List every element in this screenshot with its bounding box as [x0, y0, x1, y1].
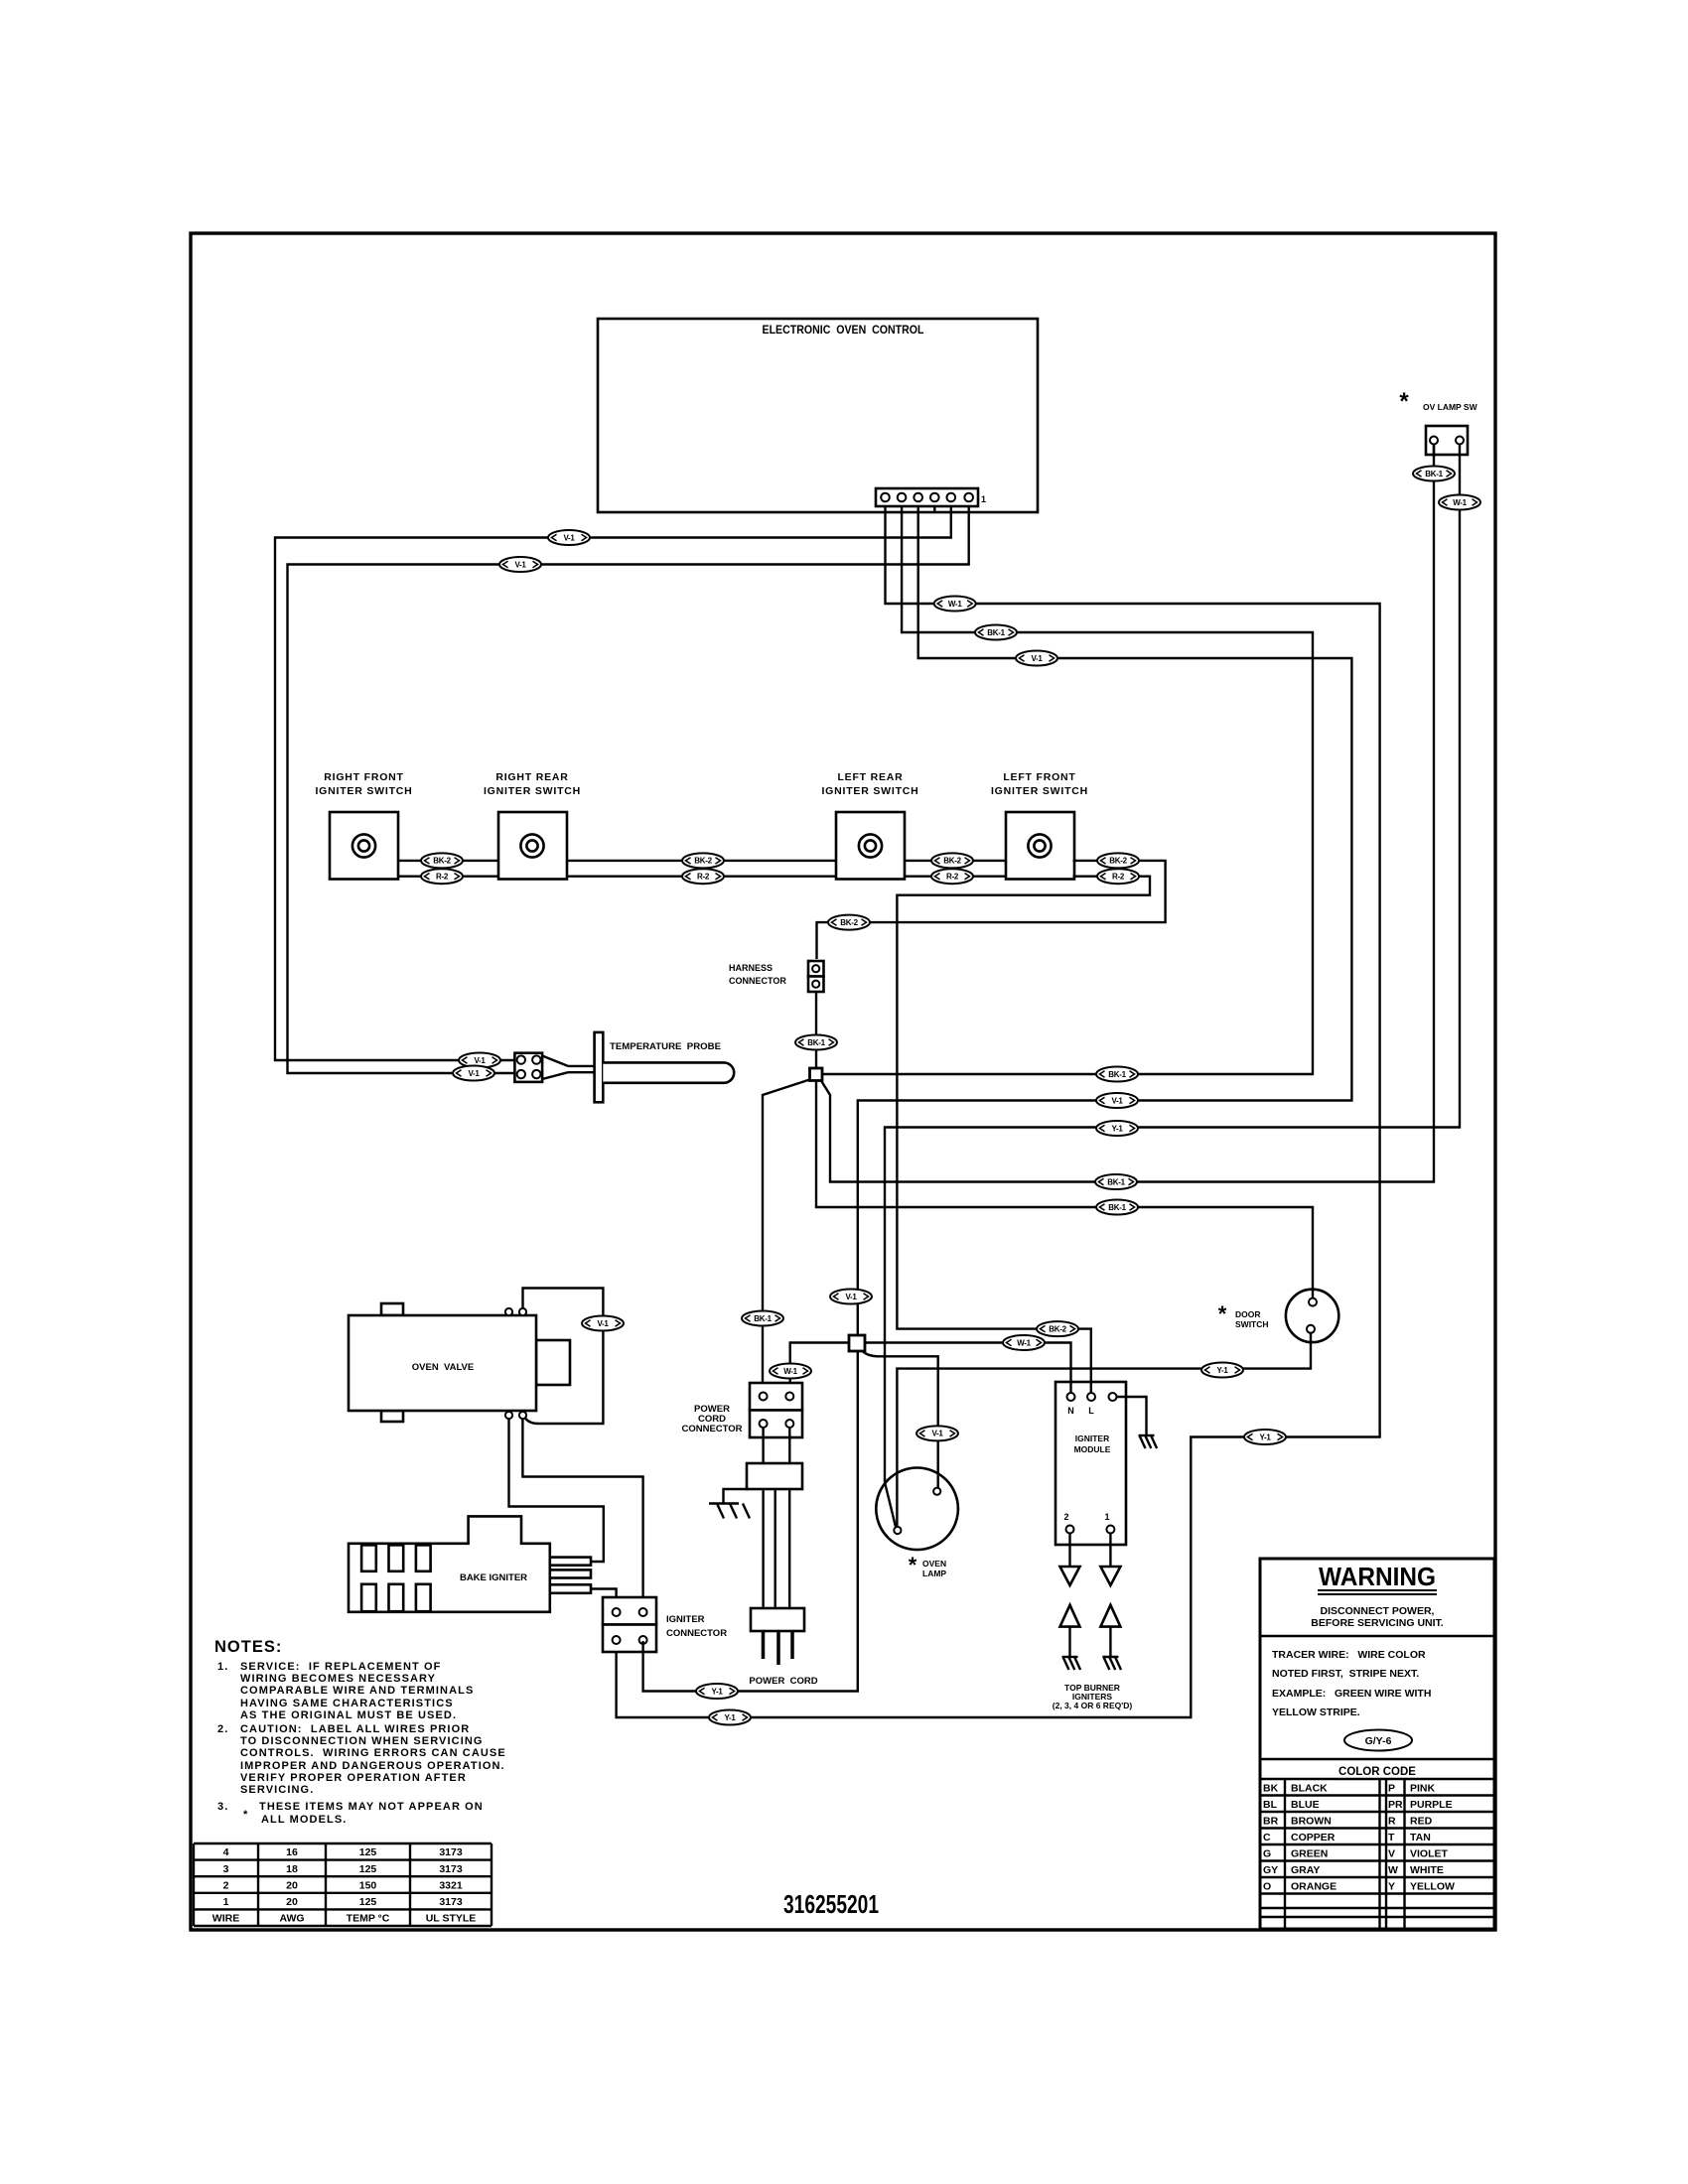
svg-text:BLUE: BLUE [1291, 1799, 1320, 1811]
svg-text:1: 1 [981, 494, 986, 504]
svg-text:BEFORE SERVICING UNIT.: BEFORE SERVICING UNIT. [1311, 1617, 1443, 1629]
svg-text:DOOR: DOOR [1235, 1309, 1261, 1319]
svg-text:EXAMPLE: GREEN WIRE WITH: EXAMPLE: GREEN WIRE WITH [1272, 1688, 1431, 1700]
svg-text:VERIFY PROPER OPERATION AFTER: VERIFY PROPER OPERATION AFTER [240, 1772, 467, 1784]
svg-text:Y-1: Y-1 [724, 1713, 736, 1722]
svg-text:(2, 3, 4 OR 6 REQ'D): (2, 3, 4 OR 6 REQ'D) [1053, 1701, 1133, 1710]
svg-text:IGNITER SWITCH: IGNITER SWITCH [991, 785, 1088, 797]
svg-text:O: O [1263, 1880, 1271, 1892]
svg-text:DISCONNECT POWER,: DISCONNECT POWER, [1321, 1605, 1435, 1617]
svg-text:125: 125 [359, 1896, 377, 1908]
svg-text:V-1: V-1 [931, 1430, 943, 1438]
svg-text:R: R [1388, 1815, 1396, 1827]
svg-text:CAUTION: LABEL ALL WIRES PRIO: CAUTION: LABEL ALL WIRES PRIOR [240, 1723, 470, 1735]
svg-text:BROWN: BROWN [1291, 1815, 1332, 1827]
svg-text:ELECTRONIC OVEN CONTROL: ELECTRONIC OVEN CONTROL [763, 323, 924, 337]
svg-text:OVEN VALVE: OVEN VALVE [412, 1362, 474, 1373]
svg-text:BLACK: BLACK [1291, 1782, 1328, 1794]
svg-text:COMPARABLE WIRE AND TERMINALS: COMPARABLE WIRE AND TERMINALS [240, 1685, 474, 1697]
svg-text:WHITE: WHITE [1410, 1864, 1444, 1876]
svg-text:BK-1: BK-1 [1108, 1070, 1126, 1079]
svg-text:WARNING: WARNING [1319, 1562, 1436, 1591]
svg-text:G: G [1263, 1847, 1271, 1859]
svg-text:2: 2 [223, 1879, 229, 1891]
svg-text:IMPROPER AND DANGEROUS OPERATI: IMPROPER AND DANGEROUS OPERATION. [240, 1760, 505, 1772]
svg-text:1.: 1. [217, 1661, 228, 1673]
svg-text:ALL MODELS.: ALL MODELS. [261, 1814, 347, 1826]
svg-text:IGNITER SWITCH: IGNITER SWITCH [484, 785, 581, 797]
svg-text:COLOR CODE: COLOR CODE [1338, 1766, 1416, 1778]
svg-text:BK-1: BK-1 [1108, 1203, 1126, 1212]
svg-text:YELLOW STRIPE.: YELLOW STRIPE. [1272, 1706, 1360, 1718]
svg-text:*: * [243, 1809, 248, 1821]
svg-text:BK-1: BK-1 [987, 628, 1005, 637]
svg-text:GY: GY [1263, 1864, 1278, 1876]
svg-text:GRAY: GRAY [1291, 1864, 1320, 1876]
svg-text:UL STYLE: UL STYLE [426, 1913, 477, 1925]
svg-text:SERVICE: IF REPLACEMENT OF: SERVICE: IF REPLACEMENT OF [240, 1661, 441, 1673]
svg-text:3321: 3321 [439, 1879, 463, 1891]
svg-text:*: * [1399, 388, 1409, 415]
svg-text:150: 150 [359, 1879, 377, 1891]
svg-text:W-1: W-1 [1453, 498, 1467, 507]
svg-text:V-1: V-1 [514, 560, 526, 569]
svg-text:T: T [1388, 1832, 1395, 1843]
svg-text:R-2: R-2 [436, 873, 449, 882]
svg-text:BK-2: BK-2 [694, 857, 712, 866]
svg-text:SWITCH: SWITCH [1235, 1319, 1269, 1329]
svg-text:PR: PR [1388, 1799, 1403, 1811]
svg-text:2: 2 [1063, 1512, 1068, 1522]
svg-text:V-1: V-1 [468, 1069, 480, 1078]
svg-text:*: * [1218, 1301, 1227, 1326]
svg-text:VIOLET: VIOLET [1410, 1847, 1449, 1859]
svg-text:20: 20 [286, 1879, 298, 1891]
svg-text:LAMP: LAMP [922, 1569, 946, 1578]
svg-text:BK-1: BK-1 [754, 1314, 772, 1323]
svg-text:BK-2: BK-2 [1109, 857, 1127, 866]
svg-text:THESE ITEMS MAY NOT APPEAR ON: THESE ITEMS MAY NOT APPEAR ON [259, 1801, 484, 1813]
svg-text:BK-1: BK-1 [1107, 1177, 1125, 1186]
svg-text:V-1: V-1 [597, 1319, 609, 1328]
svg-text:3173: 3173 [439, 1896, 463, 1908]
svg-text:PINK: PINK [1410, 1782, 1436, 1794]
svg-text:1: 1 [223, 1896, 229, 1908]
svg-text:NOTES:: NOTES: [214, 1638, 282, 1656]
svg-text:IGNITER SWITCH: IGNITER SWITCH [821, 785, 918, 797]
svg-text:*: * [909, 1553, 917, 1577]
svg-text:2.: 2. [217, 1723, 228, 1735]
svg-text:P: P [1388, 1782, 1395, 1794]
svg-text:MODULE: MODULE [1074, 1444, 1111, 1454]
svg-text:CONNECTOR: CONNECTOR [666, 1628, 727, 1639]
svg-text:L: L [1088, 1406, 1094, 1416]
svg-text:POWER CORD: POWER CORD [749, 1676, 817, 1687]
svg-text:16: 16 [286, 1846, 298, 1858]
svg-text:OV LAMP SW: OV LAMP SW [1423, 402, 1478, 412]
svg-text:TO DISCONNECTION WHEN SERVICIN: TO DISCONNECTION WHEN SERVICING [240, 1735, 484, 1747]
svg-text:BL: BL [1263, 1799, 1278, 1811]
svg-text:BK-2: BK-2 [943, 857, 961, 866]
svg-text:IGNITER SWITCH: IGNITER SWITCH [315, 785, 412, 797]
svg-text:W: W [1388, 1864, 1398, 1876]
svg-text:BR: BR [1263, 1815, 1279, 1827]
svg-text:NOTED FIRST, STRIPE NEXT.: NOTED FIRST, STRIPE NEXT. [1272, 1668, 1419, 1680]
svg-text:3173: 3173 [439, 1863, 463, 1875]
svg-text:WIRING BECOMES NECESSARY: WIRING BECOMES NECESSARY [240, 1673, 436, 1685]
svg-text:V: V [1388, 1847, 1395, 1859]
svg-text:Y: Y [1388, 1880, 1395, 1892]
svg-text:BK-2: BK-2 [840, 918, 858, 927]
svg-text:20: 20 [286, 1896, 298, 1908]
svg-text:TRACER WIRE: WIRE COLOR: TRACER WIRE: WIRE COLOR [1272, 1649, 1426, 1661]
svg-text:AS THE ORIGINAL MUST BE USED.: AS THE ORIGINAL MUST BE USED. [240, 1709, 457, 1721]
svg-text:LEFT FRONT: LEFT FRONT [1003, 771, 1075, 783]
svg-text:BK-1: BK-1 [1425, 470, 1443, 478]
svg-text:BK-1: BK-1 [807, 1038, 825, 1047]
svg-text:4: 4 [223, 1846, 229, 1858]
svg-text:PURPLE: PURPLE [1410, 1799, 1453, 1811]
svg-text:Y-1: Y-1 [1216, 1366, 1228, 1375]
svg-text:V-1: V-1 [845, 1293, 857, 1301]
svg-text:1: 1 [1104, 1512, 1109, 1522]
svg-text:N: N [1067, 1406, 1074, 1416]
svg-text:G/Y-6: G/Y-6 [1365, 1735, 1392, 1747]
svg-text:R-2: R-2 [1112, 873, 1125, 882]
svg-text:IGNITER: IGNITER [1075, 1433, 1109, 1443]
svg-text:TEMPERATURE PROBE: TEMPERATURE PROBE [610, 1041, 721, 1052]
svg-text:SERVICING.: SERVICING. [240, 1784, 314, 1796]
svg-text:Y-1: Y-1 [1111, 1124, 1123, 1133]
svg-text:3173: 3173 [439, 1846, 463, 1858]
svg-text:TEMP °C: TEMP °C [347, 1913, 390, 1925]
svg-text:CONTROLS. WIRING ERRORS CAN C: CONTROLS. WIRING ERRORS CAN CAUSE [240, 1747, 506, 1759]
svg-text:R-2: R-2 [946, 873, 959, 882]
svg-text:COPPER: COPPER [1291, 1832, 1336, 1843]
svg-text:125: 125 [359, 1846, 377, 1858]
svg-text:W-1: W-1 [783, 1367, 797, 1376]
svg-text:HARNESS: HARNESS [729, 963, 773, 973]
svg-text:R-2: R-2 [697, 873, 710, 882]
svg-text:HAVING SAME CHARACTERISTICS: HAVING SAME CHARACTERISTICS [240, 1698, 454, 1709]
svg-text:RIGHT FRONT: RIGHT FRONT [324, 771, 404, 783]
svg-text:Y-1: Y-1 [711, 1687, 723, 1696]
svg-text:YELLOW: YELLOW [1410, 1880, 1455, 1892]
svg-text:OVEN: OVEN [922, 1559, 946, 1569]
svg-text:3.: 3. [217, 1801, 228, 1813]
svg-text:BK-2: BK-2 [433, 857, 451, 866]
svg-text:125: 125 [359, 1863, 377, 1875]
svg-text:AWG: AWG [279, 1913, 304, 1925]
svg-text:CONNECTOR: CONNECTOR [681, 1424, 742, 1434]
svg-text:TAN: TAN [1410, 1832, 1431, 1843]
svg-text:WIRE: WIRE [212, 1913, 239, 1925]
svg-text:IGNITER: IGNITER [666, 1614, 705, 1625]
svg-text:CONNECTOR: CONNECTOR [729, 976, 786, 986]
svg-text:BK: BK [1263, 1782, 1279, 1794]
svg-text:C: C [1263, 1832, 1271, 1843]
svg-text:18: 18 [286, 1863, 298, 1875]
svg-text:W-1: W-1 [948, 600, 962, 609]
svg-text:RIGHT REAR: RIGHT REAR [495, 771, 568, 783]
svg-text:316255201: 316255201 [783, 1889, 879, 1919]
svg-text:BAKE IGNITER: BAKE IGNITER [460, 1572, 527, 1583]
svg-text:3: 3 [223, 1863, 229, 1875]
svg-text:V-1: V-1 [474, 1056, 486, 1065]
svg-text:LEFT REAR: LEFT REAR [837, 771, 903, 783]
svg-text:GREEN: GREEN [1291, 1847, 1328, 1859]
svg-text:Y-1: Y-1 [1259, 1433, 1271, 1441]
svg-text:V-1: V-1 [563, 533, 575, 542]
svg-text:ORANGE: ORANGE [1291, 1880, 1336, 1892]
svg-text:V-1: V-1 [1111, 1096, 1123, 1105]
svg-text:W-1: W-1 [1017, 1338, 1031, 1347]
svg-text:V-1: V-1 [1031, 654, 1043, 663]
svg-text:BK-2: BK-2 [1049, 1324, 1066, 1333]
svg-text:RED: RED [1410, 1815, 1433, 1827]
